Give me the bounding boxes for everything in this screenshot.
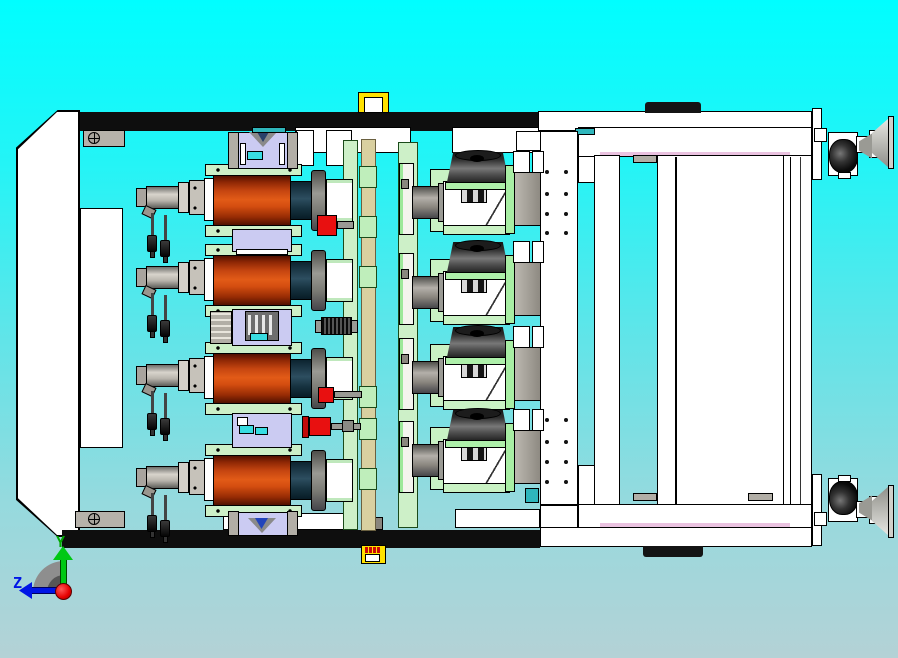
turret-bottom-strip [443,483,510,493]
bottom-sensor-window [365,554,380,562]
frame-slot-tab-3 [633,493,657,501]
turret-top-box-a [513,326,530,348]
turret-detail-box [461,364,487,378]
leveling-foot-flange [888,116,894,169]
frame-slot-tab-4 [748,493,773,501]
frame-slot-tab-1 [633,155,657,163]
turret-detail-box [461,447,487,461]
cable-plug-b [160,520,170,537]
motor-flange [311,450,326,511]
cable-rod-b [164,215,167,242]
motor-flange [311,250,326,311]
bottom-rail-right [540,527,812,547]
frame-right-beam [783,155,812,506]
cable-rod-a [151,391,154,415]
turret-gray-block [514,430,541,484]
turret-left-plate-boss [401,354,409,364]
bottom-rail [62,530,540,548]
turret-gray-block [514,172,541,226]
gripper-plate-a [178,462,189,493]
knurled-shaft-end-left [315,320,322,333]
motor-gearbox [326,259,353,302]
leveling-cone-large [872,118,889,168]
bottom-bumper-foot [643,546,703,557]
red-coupler-3-flange [302,416,309,438]
caster-assembly [812,474,898,548]
frame-teal-accent-top [575,128,595,135]
frame-center-divider [675,157,677,504]
top-bumper-foot [645,102,701,113]
cable-rod-a [151,213,154,237]
motor-cap [290,261,313,300]
guide1-pillar-right [287,132,298,169]
cable-rod-b [164,393,167,420]
comb-teeth-pattern [248,315,276,335]
turret-top-box-a [513,409,530,431]
guide1-slot-right [279,143,285,165]
cable-plug-b-tip [163,536,168,543]
cable-plug-a-tip [150,531,155,538]
turret-bottom-strip [443,225,510,235]
guide1-chip [247,151,263,160]
z-axis-label: Z [13,576,22,591]
motor-cylinder [213,175,291,226]
red-coupler-3 [309,417,331,436]
cable-plug-a [147,413,157,430]
caster-stub [814,512,827,526]
frame-right-beam-line2 [800,157,801,504]
cable-plug-b-tip [163,434,168,441]
caster-tab [838,172,851,179]
cable-plug-b [160,240,170,257]
knurled-shaft [321,317,352,335]
gripper-arm-cylinder [146,466,179,489]
bottom-sensor-led [365,547,380,553]
guide1-slot-left [240,143,246,165]
turret-cap-marker [470,413,484,420]
cable-rod-b [164,295,167,322]
bolt-hole-dots [545,170,549,174]
cable-rod-a [151,493,154,517]
knurled-shaft-end-right [351,320,358,333]
turret-top-box-b [532,241,544,263]
guide2-strip [236,249,288,255]
guide1-teal-bar [252,127,286,133]
top-left-clamp-screw [88,132,100,144]
comb-unit-left [210,311,232,344]
comb-chip [250,333,268,341]
turret-detail-box [461,189,487,203]
cable-plug-b-tip [163,256,168,263]
frame-teal-accent-bottom [525,488,539,503]
caster-tab [838,475,851,482]
bottom-crossbeam-right [455,509,540,528]
cable-plug-a-tip [150,331,155,338]
turret-gray-block [514,262,541,316]
spacer-tab [359,418,377,440]
turret-top-box-b [532,326,544,348]
turret-left-plate-boss [401,269,409,279]
cable-plug-a-tip [150,429,155,436]
gripper-plate-a [178,360,189,391]
caster-bracket [812,108,822,180]
turret-top-box-b [532,409,544,431]
spacer-tab [359,468,377,490]
caster-bracket [812,474,822,546]
spacer-tab [359,216,377,238]
gripper-plate-a [178,262,189,293]
cable-rod-b [164,495,167,522]
turret-cap-marker [470,330,484,337]
red-coupler-2 [318,387,334,403]
bottom-left-clamp [75,511,125,528]
cable-plug-a [147,315,157,332]
coupler-block-3 [342,420,354,432]
caster-wheel [829,139,858,173]
turret-top-box-a [513,151,530,173]
cable-plug-a [147,235,157,252]
leveling-cone-large [872,486,889,536]
origin-point [55,583,72,600]
top-sensor-window [364,97,383,113]
motor-cap [290,359,313,398]
left-sub-panel [80,208,123,448]
gripper-plate-a [178,182,189,213]
cable-plug-a [147,515,157,532]
coupler-rod-2 [334,391,362,398]
spacer-tab [359,166,377,188]
top-guide-box-a [296,130,314,166]
turret-top-box-b [532,151,544,173]
turret-top-box-a [513,241,530,263]
bottom-left-clamp-screw [88,513,100,525]
motor-cap [290,181,313,220]
turret-gray-block [514,347,541,401]
cable-plug-b [160,418,170,435]
motor-cylinder [213,353,291,404]
motor-cap [290,461,313,500]
cable-rod-a [151,293,154,317]
guide4-chip-a [239,425,254,434]
turret-cap-marker [470,155,484,162]
caster-assembly [812,106,898,180]
cable-plug-b-tip [163,336,168,343]
caster-stub [814,128,827,142]
y-axis-label: Y [56,535,65,550]
motor-gearbox [326,459,353,502]
gripper-arm-cylinder [146,364,179,387]
turret-detail-box [461,279,487,293]
left-side-panel [18,112,78,535]
coupler-rod-1 [337,221,354,229]
red-coupler-1 [317,215,337,236]
motor-cylinder [213,455,291,506]
guide4-chip-b [255,427,268,435]
turret-bottom-strip [443,315,510,325]
caster-wheel [829,481,858,515]
cable-plug-a-tip [150,251,155,258]
perforated-plate [540,131,578,505]
frame-right-beam-line1 [790,157,791,504]
spacer-tab [359,266,377,288]
motor-cylinder [213,255,291,306]
frame-left-patch-top [578,156,595,183]
leveling-foot-flange [888,485,894,538]
cable-plug-b [160,320,170,337]
gripper-arm-cylinder [146,266,179,289]
top-patch [516,131,542,151]
cad-viewport[interactable]: Y Z [0,0,898,658]
guide5-pillar-right [287,511,298,536]
gripper-arm-cylinder [146,186,179,209]
frame-left-beam [594,155,620,506]
frame-bottom-seal [600,523,790,527]
turret-cap-marker [470,245,484,252]
frame-left-patch-bottom [578,465,595,506]
turret-left-plate-boss [401,437,409,447]
bottom-patch [540,505,578,528]
turret-left-plate-boss [401,179,409,189]
